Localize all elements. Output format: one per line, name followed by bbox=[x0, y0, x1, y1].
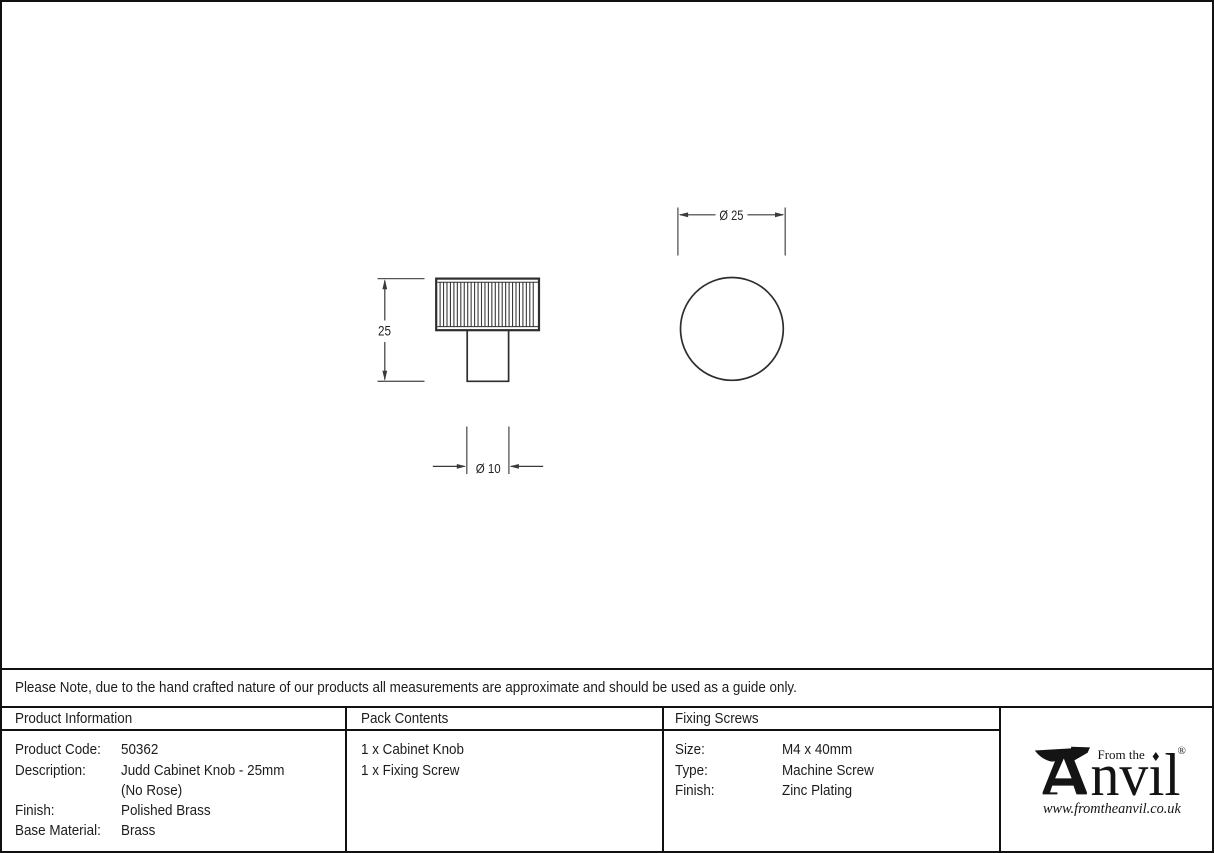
svg-text:®: ® bbox=[1178, 745, 1186, 757]
svg-text:25: 25 bbox=[378, 322, 391, 338]
svg-text:Ø 25: Ø 25 bbox=[719, 208, 743, 223]
svg-text:Ø 10: Ø 10 bbox=[476, 461, 501, 476]
svg-text:www.fromtheanvil.co.uk: www.fromtheanvil.co.uk bbox=[1043, 801, 1181, 817]
svg-text:From the: From the bbox=[1098, 747, 1146, 762]
